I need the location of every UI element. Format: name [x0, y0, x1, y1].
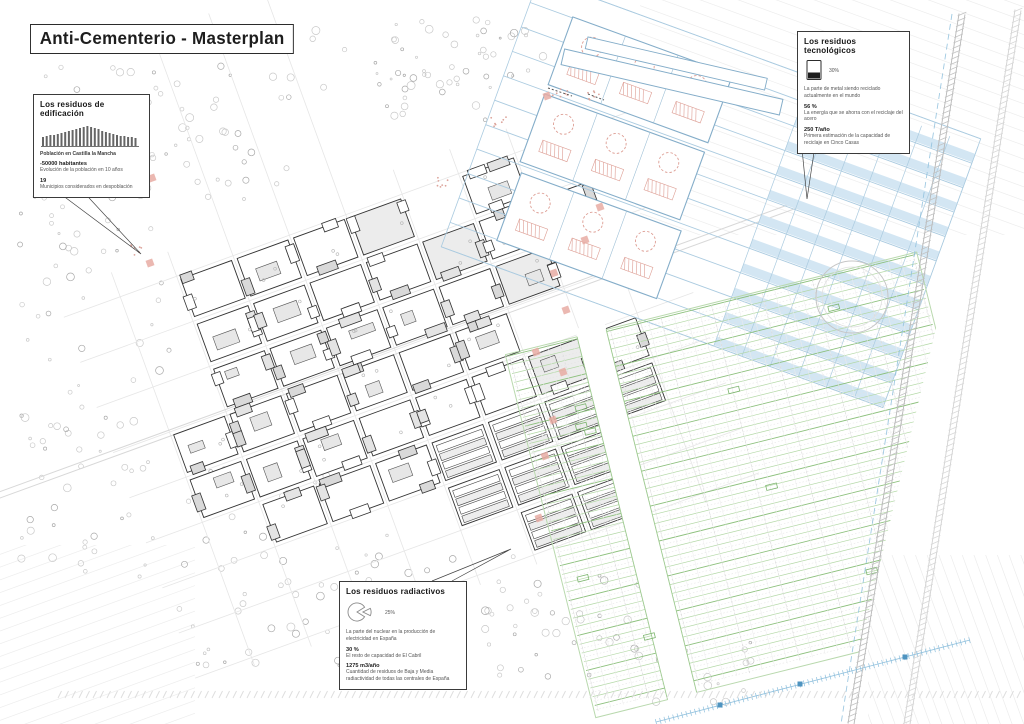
stat-capacidad-reciclaje: 250 T/año Primera estimación de la capac…	[804, 127, 903, 147]
pie-icon-row: 25%	[346, 600, 460, 625]
stat-residuos-anuales: 1275 m3/año Cuantidad de residuos de Baj…	[346, 663, 460, 683]
box-title-radiactivos: Los residuos radiactivos	[346, 587, 460, 596]
annotation-box-edificacion: Los residuos de edificación Población en…	[33, 94, 150, 198]
annotation-box-tecnologicos: Los residuos tecnológicos 30% La parte d…	[797, 31, 910, 154]
population-bar-chart-icon	[40, 122, 140, 149]
ewaste-icon-row: 30%	[804, 59, 903, 82]
page-title: Anti-Cementerio - Masterplan	[30, 24, 294, 54]
stat-cabril: 30 % El resto de capacidad de El Cabril	[346, 647, 460, 660]
ewaste-icon-label: 30%	[829, 68, 839, 74]
bottom-road-hatch	[58, 691, 1021, 698]
drawing-sheet: Anti-Cementerio - Masterplan Los residuo…	[0, 0, 1024, 724]
box-title-edificacion: Los residuos de edificación	[40, 100, 143, 118]
chart-caption: Población en Castilla la Mancha	[40, 151, 143, 157]
ewaste-container-icon	[804, 59, 824, 82]
pie-icon-label: 25%	[385, 610, 395, 616]
radiactivos-intro: La parte del nuclear en la producción de…	[346, 629, 460, 643]
annotation-box-radiactivos: Los residuos radiactivos 25% La parte de…	[339, 581, 467, 690]
box-title-tecnologicos: Los residuos tecnológicos	[804, 37, 903, 55]
stat-energia: 56 % La energía que se ahorra con el rec…	[804, 104, 903, 124]
stat-population: -50000 habitantes Evolución de la poblac…	[40, 161, 143, 174]
tecnologicos-intro: La parte de metal siendo reciclado actua…	[804, 86, 903, 100]
stat-municipios: 19 Municipios considerados en despoblaci…	[40, 178, 143, 191]
pie-chart-icon	[346, 600, 380, 625]
